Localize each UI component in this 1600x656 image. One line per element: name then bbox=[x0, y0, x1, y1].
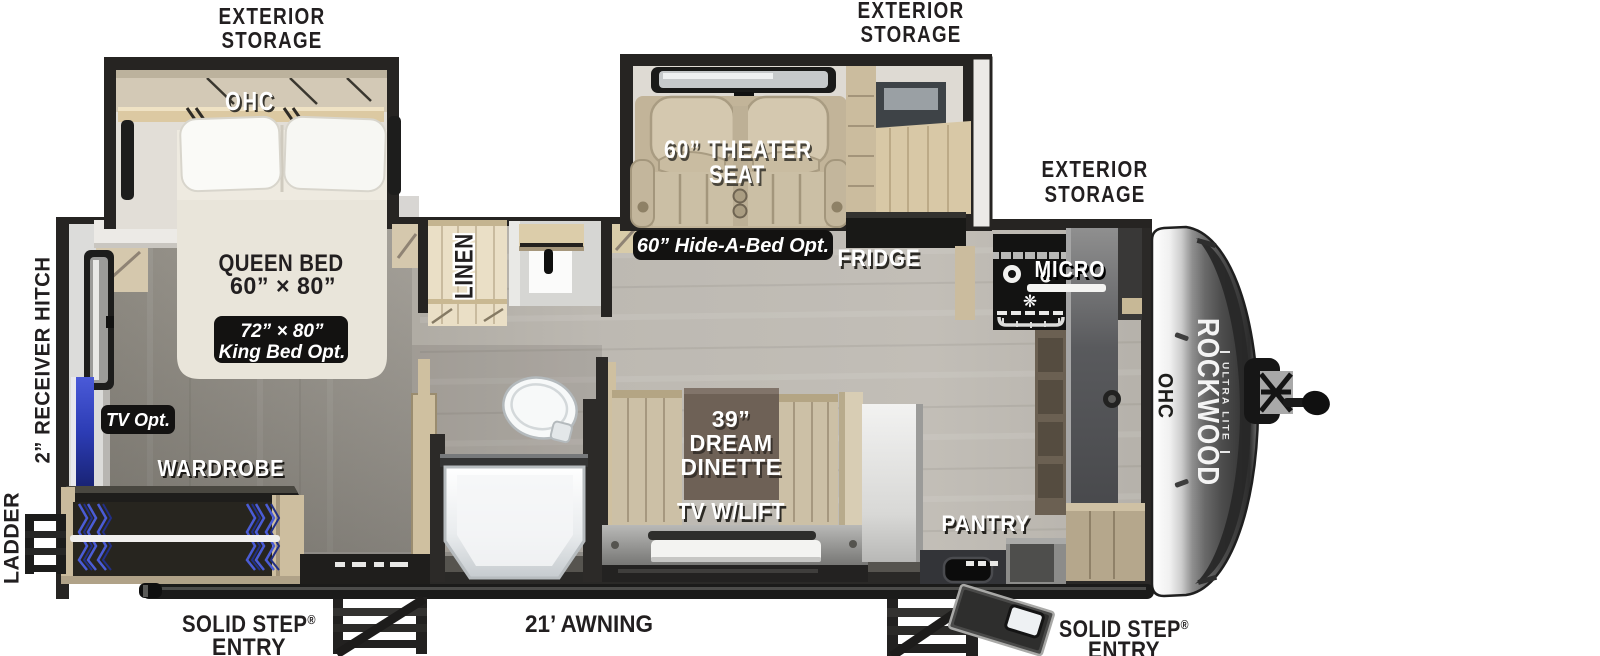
svg-text:DREAM: DREAM bbox=[690, 430, 773, 456]
svg-text:LADDER: LADDER bbox=[1, 492, 24, 584]
svg-text:PANTRY: PANTRY bbox=[942, 511, 1031, 536]
svg-text:OHC: OHC bbox=[225, 86, 275, 116]
svg-text:DINETTE: DINETTE bbox=[681, 454, 782, 480]
svg-text:King Bed Opt.: King Bed Opt. bbox=[219, 342, 346, 363]
svg-text:EXTERIOR: EXTERIOR bbox=[219, 3, 326, 29]
svg-text:72” × 80”: 72” × 80” bbox=[241, 321, 324, 342]
svg-text:MICRO: MICRO bbox=[1035, 256, 1106, 282]
svg-text:60” × 80”: 60” × 80” bbox=[230, 273, 336, 300]
svg-text:SEAT: SEAT bbox=[709, 161, 765, 189]
svg-text:TV Opt.: TV Opt. bbox=[106, 410, 170, 430]
svg-text:WARDROBE: WARDROBE bbox=[158, 455, 285, 481]
svg-text:STORAGE: STORAGE bbox=[1045, 181, 1146, 207]
svg-text:ENTRY: ENTRY bbox=[212, 634, 286, 656]
svg-text:2” RECEIVER HITCH: 2” RECEIVER HITCH bbox=[32, 257, 55, 464]
svg-text:STORAGE: STORAGE bbox=[861, 21, 962, 47]
svg-text:STORAGE: STORAGE bbox=[222, 27, 323, 53]
svg-text:EXTERIOR: EXTERIOR bbox=[1042, 156, 1149, 182]
svg-text:❋: ❋ bbox=[1023, 292, 1037, 311]
svg-text:ENTRY: ENTRY bbox=[1088, 637, 1160, 656]
svg-text:EXTERIOR: EXTERIOR bbox=[858, 0, 965, 23]
svg-text:60” Hide-A-Bed Opt.: 60” Hide-A-Bed Opt. bbox=[637, 235, 829, 257]
svg-text:ROCKWOOD: ROCKWOOD bbox=[1191, 318, 1226, 486]
svg-text:OHC: OHC bbox=[1153, 373, 1176, 419]
svg-text:TV W/LIFT: TV W/LIFT bbox=[677, 498, 785, 524]
svg-text:FRIDGE: FRIDGE bbox=[838, 245, 921, 272]
svg-text:21’ AWNING: 21’ AWNING bbox=[525, 611, 653, 638]
svg-text:60” THEATER: 60” THEATER bbox=[664, 136, 812, 164]
svg-text:LINEN: LINEN bbox=[451, 233, 479, 299]
svg-text:39”: 39” bbox=[712, 406, 751, 432]
svg-text:ULTRA LITE: ULTRA LITE bbox=[1221, 362, 1231, 442]
